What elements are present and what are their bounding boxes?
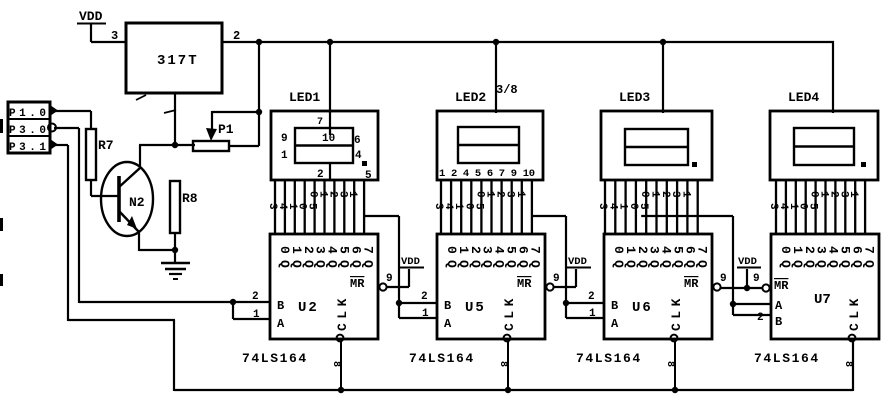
svg-text:VDD: VDD <box>568 256 587 268</box>
svg-text:1: 1 <box>346 191 358 198</box>
svg-text:R7: R7 <box>98 138 114 153</box>
svg-text:U5: U5 <box>465 300 486 316</box>
svg-text:7: 7 <box>317 117 323 128</box>
svg-text:CLK: CLK <box>502 294 517 331</box>
svg-text:4: 4 <box>606 203 618 210</box>
svg-text:2: 2 <box>588 291 595 303</box>
svg-text:1: 1 <box>649 191 661 198</box>
svg-text:CLK: CLK <box>335 294 350 331</box>
svg-text:Q: Q <box>527 260 542 268</box>
svg-text:8: 8 <box>664 361 675 367</box>
svg-text:U7: U7 <box>814 292 831 308</box>
svg-text:5: 5 <box>365 170 372 182</box>
svg-text:U6: U6 <box>632 300 653 316</box>
svg-text:A: A <box>775 299 783 313</box>
svg-text:LED2: LED2 <box>455 90 486 105</box>
svg-text:1: 1 <box>514 191 526 198</box>
svg-text:LED1: LED1 <box>289 90 320 105</box>
svg-text:5: 5 <box>807 203 819 210</box>
svg-text:5: 5 <box>637 203 649 210</box>
svg-text:9: 9 <box>553 273 560 285</box>
svg-text:P1: P1 <box>218 122 234 137</box>
svg-text:10: 10 <box>322 133 335 145</box>
svg-text:0: 0 <box>627 203 639 210</box>
svg-text:Q: Q <box>360 260 375 268</box>
svg-text:9: 9 <box>386 273 393 285</box>
svg-text:2: 2 <box>252 291 259 303</box>
svg-text:9: 9 <box>753 273 760 285</box>
svg-text:A: A <box>444 317 452 331</box>
svg-text:9: 9 <box>720 273 727 285</box>
svg-text:LED3: LED3 <box>619 90 650 105</box>
svg-text:MR: MR <box>350 277 365 291</box>
svg-text:74LS164: 74LS164 <box>754 351 820 366</box>
svg-text:Q: Q <box>861 260 876 268</box>
svg-text:A: A <box>277 317 285 331</box>
svg-text:B: B <box>444 299 451 313</box>
svg-text:9: 9 <box>281 133 288 145</box>
svg-text:4: 4 <box>355 150 362 162</box>
svg-text:7: 7 <box>694 246 709 254</box>
svg-text:2: 2 <box>757 312 764 324</box>
svg-text:6: 6 <box>354 135 361 147</box>
svg-text:74LS164: 74LS164 <box>242 351 308 366</box>
svg-text:5: 5 <box>306 203 318 210</box>
svg-text:74LS164: 74LS164 <box>576 351 642 366</box>
svg-text:1: 1 <box>847 191 859 198</box>
svg-text:8: 8 <box>330 361 341 367</box>
svg-text:MR: MR <box>684 277 699 291</box>
svg-text:1: 1 <box>617 203 629 210</box>
svg-text:MR: MR <box>517 277 532 291</box>
svg-text:R8: R8 <box>182 191 198 206</box>
svg-text:1: 1 <box>589 308 596 320</box>
svg-text:1: 1 <box>422 308 429 320</box>
svg-text:7: 7 <box>527 246 542 254</box>
svg-text:VDD: VDD <box>79 9 103 24</box>
svg-text:74LS164: 74LS164 <box>409 351 475 366</box>
svg-text:B: B <box>277 299 284 313</box>
svg-text:8: 8 <box>842 361 853 367</box>
svg-text:2: 2 <box>317 169 324 181</box>
svg-text:1: 1 <box>253 309 260 321</box>
svg-text:8: 8 <box>497 361 508 367</box>
svg-text:VDD: VDD <box>401 256 420 268</box>
svg-text:3: 3 <box>669 191 681 198</box>
svg-text:Q: Q <box>694 260 709 268</box>
svg-text:5: 5 <box>472 203 484 210</box>
svg-text:U2: U2 <box>298 300 319 316</box>
svg-text:A: A <box>611 317 619 331</box>
svg-text:B: B <box>775 315 782 329</box>
svg-text:3: 3 <box>596 203 608 210</box>
svg-text:N2: N2 <box>129 195 145 210</box>
svg-text:317T: 317T <box>157 53 199 69</box>
svg-text:VDD: VDD <box>738 256 757 268</box>
svg-text:1 2 4 5 6 7 9 10: 1 2 4 5 6 7 9 10 <box>439 168 535 180</box>
svg-text:CLK: CLK <box>669 294 684 331</box>
svg-text:1: 1 <box>281 150 288 162</box>
svg-text:LED4: LED4 <box>788 90 819 105</box>
svg-text:7: 7 <box>360 246 375 254</box>
svg-text:1: 1 <box>679 191 691 198</box>
svg-text:2: 2 <box>659 191 671 198</box>
svg-text:MR: MR <box>774 279 789 293</box>
svg-text:7: 7 <box>861 246 876 254</box>
svg-text:3/8: 3/8 <box>496 83 518 97</box>
svg-text:2: 2 <box>421 291 428 303</box>
svg-text:B: B <box>611 299 618 313</box>
svg-text:0: 0 <box>638 191 650 198</box>
svg-text:CLK: CLK <box>847 294 862 331</box>
svg-text:3: 3 <box>111 29 118 43</box>
